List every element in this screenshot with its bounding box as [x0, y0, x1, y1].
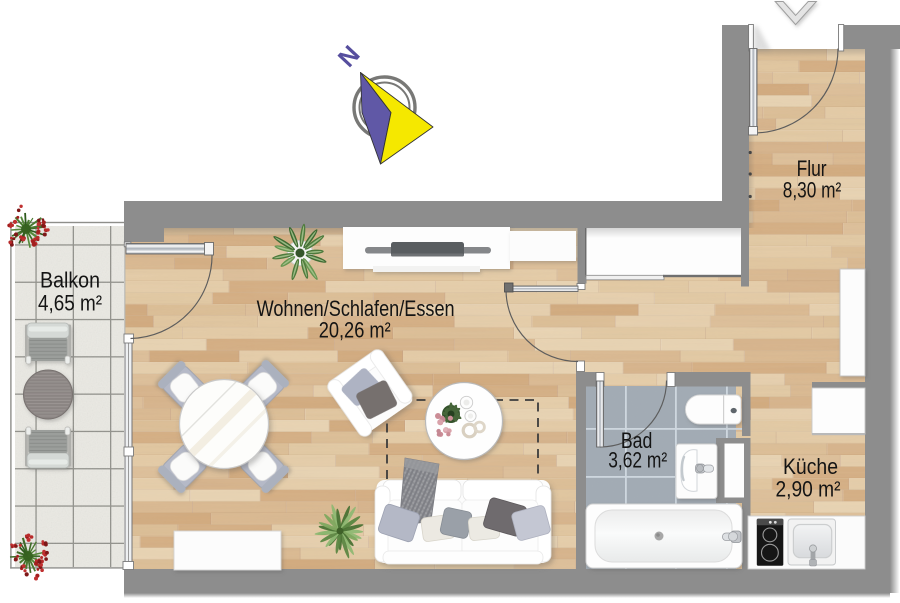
svg-text:20,26 m²: 20,26 m² [319, 318, 391, 343]
svg-text:8,30 m²: 8,30 m² [783, 178, 842, 203]
svg-text:Küche: Küche [783, 454, 838, 479]
svg-text:2,90 m²: 2,90 m² [776, 477, 841, 502]
svg-text:4,65 m²: 4,65 m² [38, 291, 102, 316]
svg-text:3,62 m²: 3,62 m² [608, 448, 667, 473]
svg-text:Balkon: Balkon [40, 268, 100, 293]
